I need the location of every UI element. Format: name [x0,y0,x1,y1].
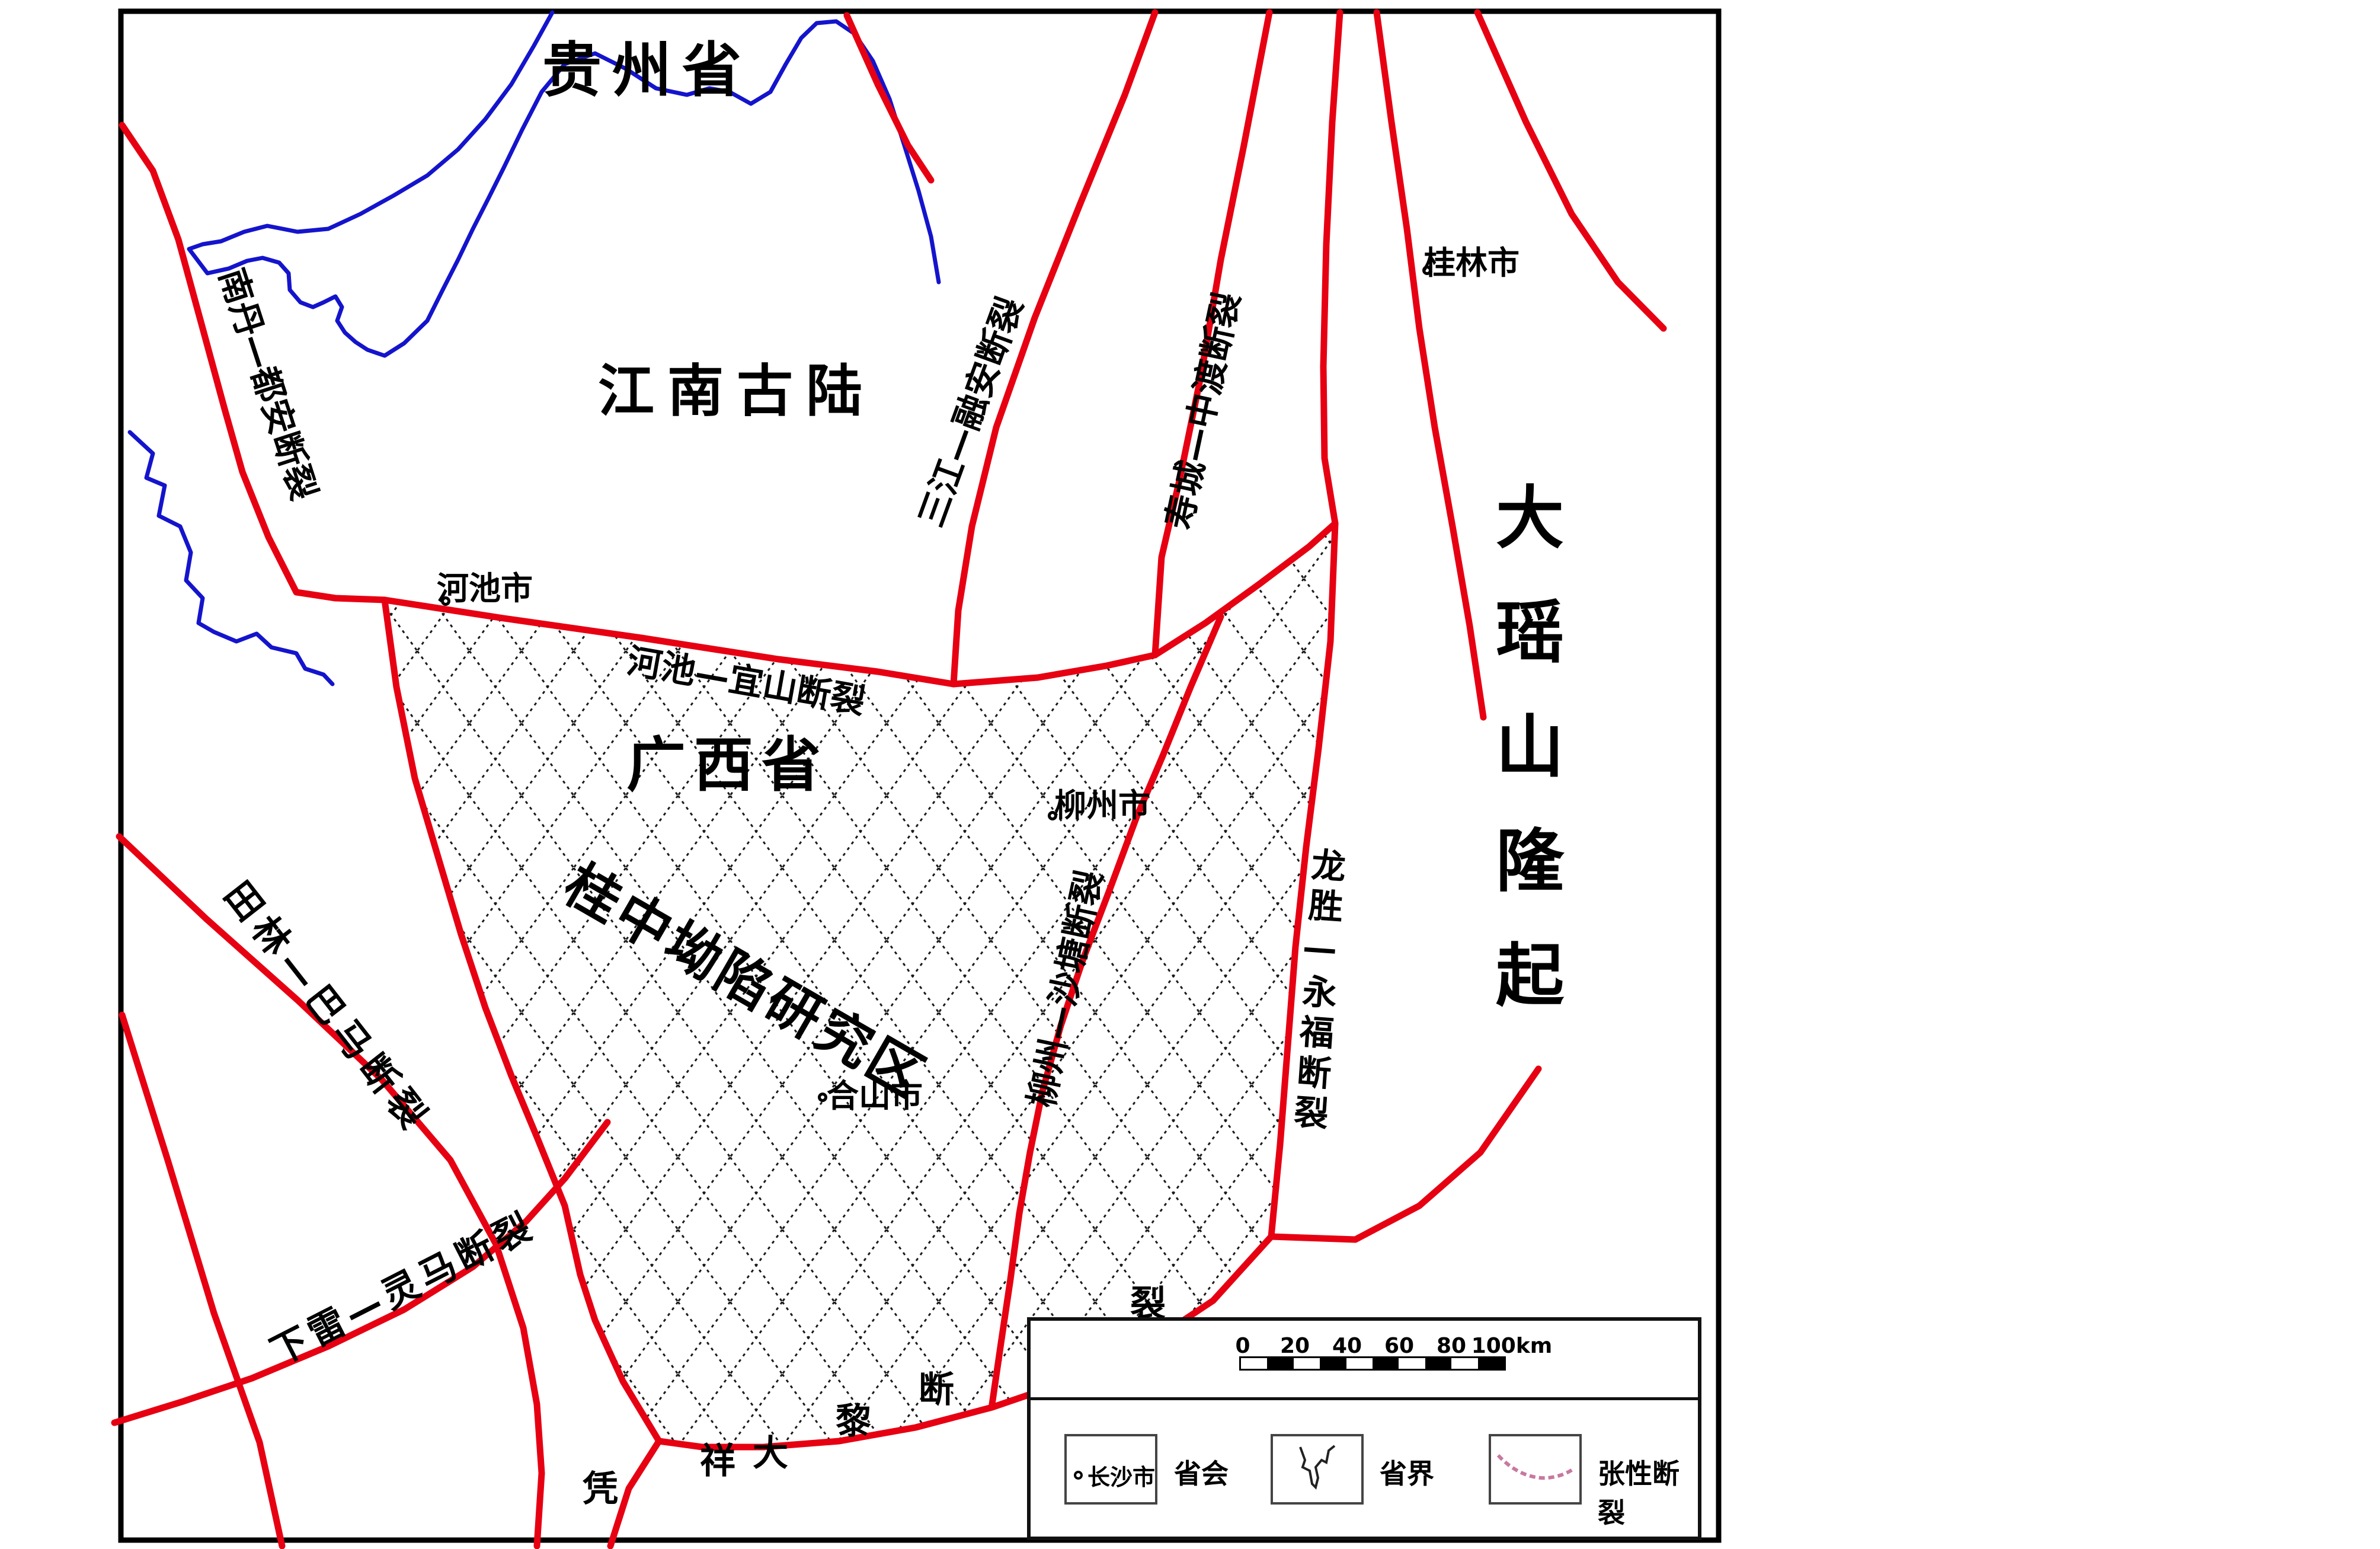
legend-capital-sample-box: 长沙市 [1064,1434,1157,1505]
legend-boundary-sample-box [1271,1434,1364,1505]
scale-tick: 0 [1235,1334,1250,1358]
scale-bar [1239,1356,1506,1371]
legend-capital-sample: 长沙市 [1074,1459,1155,1491]
city-label-hechi: 河池市 [437,573,533,605]
legend-scale-section: 0 20 40 60 80 100km [1031,1321,1698,1400]
capital-dot-icon [1074,1471,1083,1480]
region-label-guizhou: 贵州省 [542,40,752,100]
tension-fault-sample-icon [1491,1436,1579,1502]
legend-tension-fault-sample-box [1489,1434,1582,1505]
region-label-dayaoshan-uplift: 大瑶山隆起 [1490,482,1559,1054]
study-area-hatch-region [385,523,1335,1447]
fault-label-pingxiang-dali-char: 大 [753,1436,788,1471]
city-dot-icon [818,1093,827,1102]
legend-box: 0 20 40 60 80 100km 长沙市 省会 [1027,1317,1701,1540]
legend-capital-label: 省会 [1174,1452,1229,1491]
scale-tick: 40 [1332,1334,1362,1358]
fault-label-pingxiang-dali-char: 祥 [700,1443,735,1479]
fault-label-pingxiang-dali-char: 断 [919,1372,954,1408]
scale-tick: 80 [1437,1334,1466,1358]
legend-tension-fault-label: 张性断裂 [1598,1452,1698,1531]
scale-tick: 100km [1471,1334,1553,1358]
region-label-guangxi: 广西省 [626,735,829,794]
fault-label-pingxiang-dali-char: 凭 [583,1471,618,1507]
geological-map-screenshot: 贵州省 江南古陆 广西省 桂中坳陷研究区 大瑶山隆起 河池市 柳州市 合山市 桂… [0,0,2380,1549]
boundary-sample-icon [1273,1436,1361,1502]
scale-tick: 20 [1280,1334,1310,1358]
legend-boundary-label: 省界 [1380,1452,1434,1491]
region-label-jiangnan: 江南古陆 [598,363,875,420]
city-label-liuzhou: 柳州市 [1054,790,1150,822]
fault-label-pingxiang-dali-char: 黎 [836,1404,871,1439]
fault-label-pingxiang-dali-char: 裂 [1130,1286,1166,1322]
city-label-guilin: 桂林市 [1423,247,1520,279]
city-label-heshan: 合山市 [827,1080,923,1112]
legend-capital-sample-text: 长沙市 [1087,1459,1155,1491]
scale-tick: 60 [1384,1334,1414,1358]
